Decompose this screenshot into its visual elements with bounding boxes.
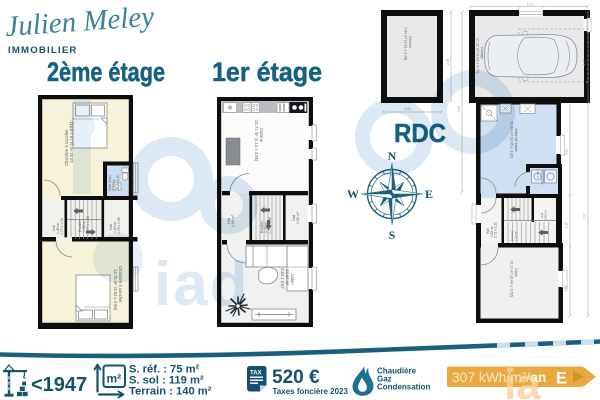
svg-text:3.02: 3.02	[565, 149, 569, 155]
svg-text:2.28: 2.28	[446, 59, 450, 65]
svg-text:TAX: TAX	[250, 371, 262, 377]
svg-text:Condensation: Condensation	[377, 383, 430, 392]
svg-text:3.99: 3.99	[457, 106, 461, 112]
svg-text:S: S	[389, 228, 396, 242]
svg-text:3.52: 3.52	[565, 285, 569, 291]
svg-text:E: E	[425, 187, 433, 201]
svg-text:<1947: <1947	[31, 374, 87, 396]
svg-text:7.17: 7.17	[583, 213, 587, 219]
svg-text:1er étage: 1er étage	[212, 57, 322, 87]
svg-text:1.35: 1.35	[565, 222, 569, 228]
svg-text:Taxes foncière 2023: Taxes foncière 2023	[273, 387, 349, 396]
svg-text:1.01: 1.01	[527, 3, 533, 7]
svg-text:W: W	[347, 187, 359, 201]
svg-text:Escalier1.13 m²: Escalier1.13 m²	[510, 230, 518, 241]
svg-text:2ème étage: 2ème étage	[47, 57, 165, 87]
svg-text:m²: m²	[107, 372, 122, 386]
svg-text:iad: iad	[154, 250, 250, 319]
svg-text:IMMOBILIER: IMMOBILIER	[8, 45, 78, 56]
svg-text:4.77: 4.77	[583, 59, 587, 65]
svg-text:Terrain : 140 m²: Terrain : 140 m²	[129, 386, 212, 398]
svg-text:520 €: 520 €	[272, 367, 320, 388]
svg-text:E: E	[556, 370, 567, 388]
svg-text:307 kWh/m²/an: 307 kWh/m²/an	[452, 370, 546, 385]
